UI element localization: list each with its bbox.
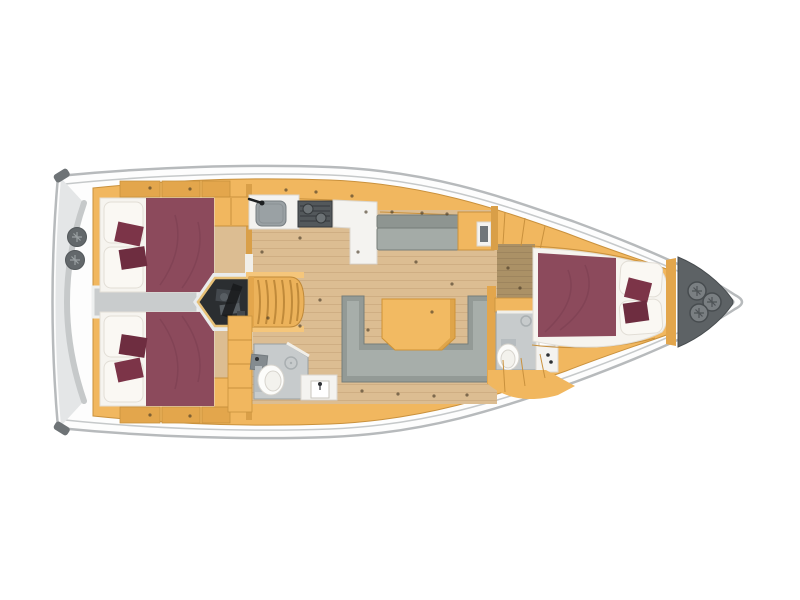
companionway-stairs <box>246 272 304 332</box>
bulkhead <box>491 206 498 250</box>
cabin-locker-strip <box>162 181 200 197</box>
cabin-locker-strip <box>120 181 160 197</box>
bow-divider <box>666 258 676 346</box>
salon-bench-backrest <box>377 215 459 228</box>
throw-pillow <box>119 246 148 270</box>
bed-duvet <box>146 198 214 292</box>
head-fitting <box>546 353 550 357</box>
shower-drain-center <box>290 362 292 364</box>
salon-table <box>382 299 455 350</box>
head-fitting <box>549 360 553 364</box>
salon-bench-seat <box>377 228 459 250</box>
bow-hatch <box>688 282 706 300</box>
stern-fitting-upper <box>68 228 87 247</box>
worktop-fitting <box>364 210 367 213</box>
cabin-locker-strip <box>202 181 230 197</box>
bow-hatch <box>690 304 708 322</box>
galley-faucet-base <box>260 201 265 206</box>
stove-burner <box>303 204 313 214</box>
sink-faucet <box>255 357 259 361</box>
yacht-floor-plan <box>0 0 800 600</box>
bed-duvet <box>538 253 616 337</box>
floor-plan-canvas <box>0 0 800 600</box>
toilet-seat <box>265 371 281 391</box>
stove-burner <box>316 213 326 223</box>
throw-pillow <box>623 300 650 323</box>
stern-fitting-lower <box>66 251 85 270</box>
engine-pulley <box>220 293 228 301</box>
cabinet-vent <box>480 226 488 242</box>
stove <box>298 201 332 227</box>
